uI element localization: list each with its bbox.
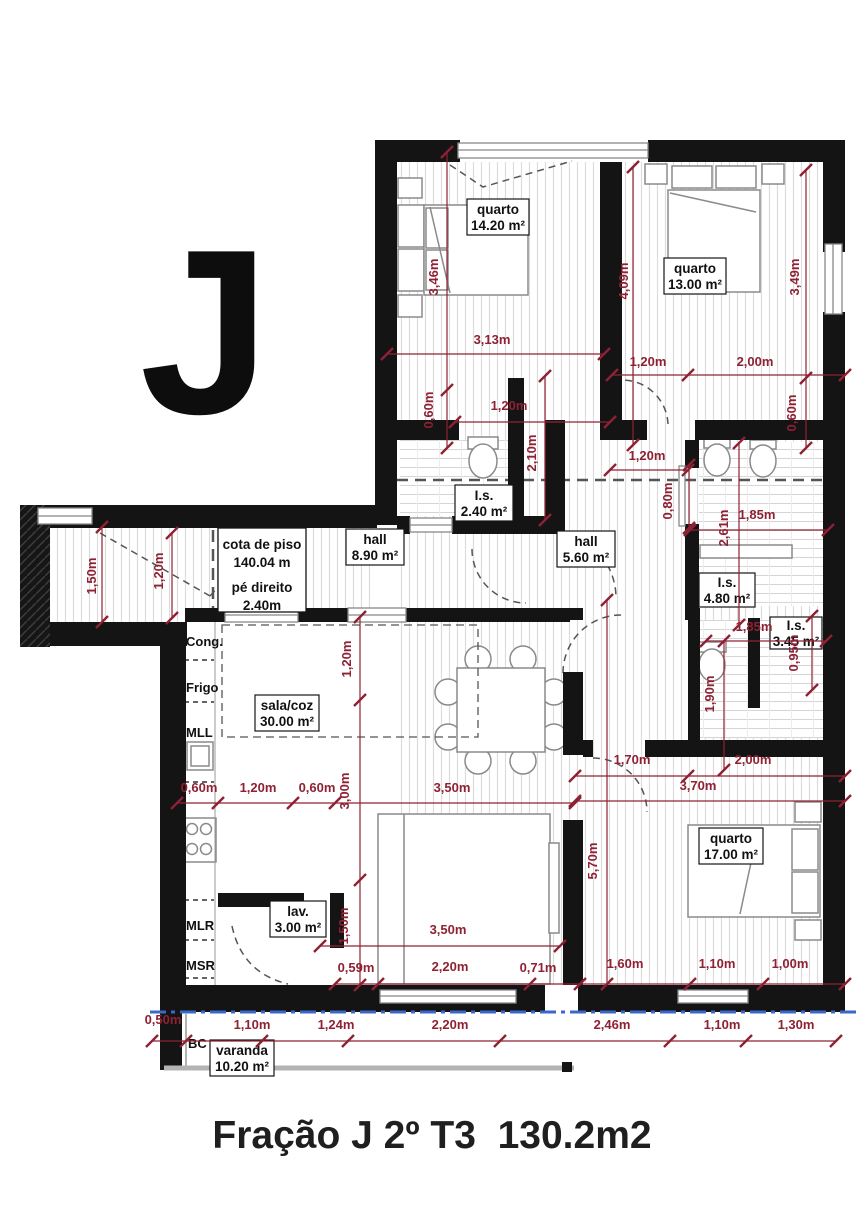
bidet-is480 (750, 440, 776, 477)
dimension-label: 1,70m (614, 752, 651, 767)
dimension-label: 3,46m (426, 259, 441, 296)
dimension-label: 3,49m (787, 259, 802, 296)
dimension-label: 5,70m (585, 843, 600, 880)
dimension-label: 2,00m (737, 354, 774, 369)
floor-plan-svg: cota de piso 140.04 m pé direito 2.40m q… (0, 0, 860, 1217)
room-name: hall (574, 534, 597, 549)
room-area: 13.00 m² (668, 277, 723, 292)
dimension-label: 0,71m (520, 960, 557, 975)
dimension-label: 0,60m (181, 780, 218, 795)
sofa (378, 814, 559, 984)
dimension-label: 2,20m (432, 959, 469, 974)
window-top (458, 143, 648, 158)
room-name: I.s. (475, 488, 494, 503)
room-name: sala/coz (261, 698, 314, 713)
dimension-label: 0,50m (145, 1012, 182, 1027)
info-line-3: pé direito (232, 580, 293, 595)
plan-caption: Fração J 2º T3 130.2m2 (212, 1114, 651, 1157)
room-area: 8.90 m² (352, 548, 399, 563)
room-area: 4.80 m² (704, 591, 751, 606)
dimension-label: 0,60m (421, 392, 436, 429)
dimension-label: 3,00m (337, 773, 352, 810)
dimension-label: 2,20m (432, 1017, 469, 1032)
dimension-label: 0,80m (660, 483, 675, 520)
dimension-label: 1,20m (240, 780, 277, 795)
room-area: 10.20 m² (215, 1059, 270, 1074)
toilet-is345 (698, 642, 726, 681)
dimension-label: 0,59m (338, 960, 375, 975)
room-area: 14.20 m² (471, 218, 526, 233)
appliance-label: Cong. (186, 634, 223, 649)
dimension-label: 1,10m (699, 956, 736, 971)
appliance-label: Frigo (186, 680, 219, 695)
dimension-label: 0,60m (784, 395, 799, 432)
appliance-label: BC (188, 1036, 207, 1051)
room-name: quarto (674, 261, 716, 276)
door-gap (545, 985, 578, 1012)
dimension-label: 1,20m (629, 448, 666, 463)
appliance-label: MLL (186, 725, 213, 740)
dimension-label: 3,13m (474, 332, 511, 347)
info-line-4: 2.40m (243, 598, 281, 613)
dimension-label: 1,10m (704, 1017, 741, 1032)
dimension-label: 3,50m (434, 780, 471, 795)
dimension-label: 2,46m (594, 1017, 631, 1032)
dimension-label: 2,00m (735, 752, 772, 767)
toilet-is240 (468, 437, 498, 478)
dimension-label: 0,60m (299, 780, 336, 795)
window-bottom-1 (380, 990, 516, 1003)
dimension-label: 4,09m (616, 263, 631, 300)
room-name: I.s. (718, 575, 737, 590)
dimension-label: 1,50m (84, 558, 99, 595)
room-area: 17.00 m² (704, 847, 759, 862)
dimension-label: 1,20m (151, 553, 166, 590)
dimension-label: 1,90m (702, 676, 717, 713)
info-line-2: 140.04 m (233, 555, 290, 570)
room-area: 2.40 m² (461, 504, 508, 519)
info-line-1: cota de piso (223, 537, 302, 552)
room-area: 30.00 m² (260, 714, 315, 729)
railing-post (562, 1062, 572, 1072)
slider-hall (410, 518, 452, 532)
room-area: 5.60 m² (563, 550, 610, 565)
dimension-label: 1,24m (318, 1017, 355, 1032)
vanity-is480 (700, 545, 792, 558)
kitchen-sink (187, 742, 213, 770)
dimension-label: 1,20m (491, 398, 528, 413)
dimension-label: 1,20m (339, 641, 354, 678)
dimension-label: 1,85m (739, 507, 776, 522)
dimension-label: 3,70m (680, 778, 717, 793)
dimension-label: 2,61m (716, 510, 731, 547)
dimension-label: 1,20m (630, 354, 667, 369)
room-name: I.s. (787, 618, 806, 633)
room-name: hall (363, 532, 386, 547)
room-name: quarto (477, 202, 519, 217)
dimension-label: 1,30m (778, 1017, 815, 1032)
window-bottom-2 (678, 990, 748, 1003)
toilet-is480 (704, 438, 730, 476)
stove (184, 818, 216, 862)
dimension-label: 1,50m (336, 908, 351, 945)
dimension-label: 0,95m (786, 635, 801, 672)
appliance-label: MSR (186, 958, 216, 973)
dimension-label: 2,10m (524, 435, 539, 472)
window-right (825, 244, 842, 314)
room-area: 3.00 m² (275, 920, 322, 935)
dimension-label: 1,60m (607, 956, 644, 971)
dimension-label: 3,50m (430, 922, 467, 937)
room-name: varanda (216, 1043, 268, 1058)
room-name: lav. (287, 904, 309, 919)
dimension-label: 1,00m (772, 956, 809, 971)
window-entry (38, 508, 92, 524)
room-name: quarto (710, 831, 752, 846)
appliance-label: MLR (186, 918, 215, 933)
info-box: cota de piso 140.04 m pé direito 2.40m (218, 528, 306, 613)
dimension-label: 1,10m (234, 1017, 271, 1032)
fraction-letter: J (140, 200, 271, 463)
